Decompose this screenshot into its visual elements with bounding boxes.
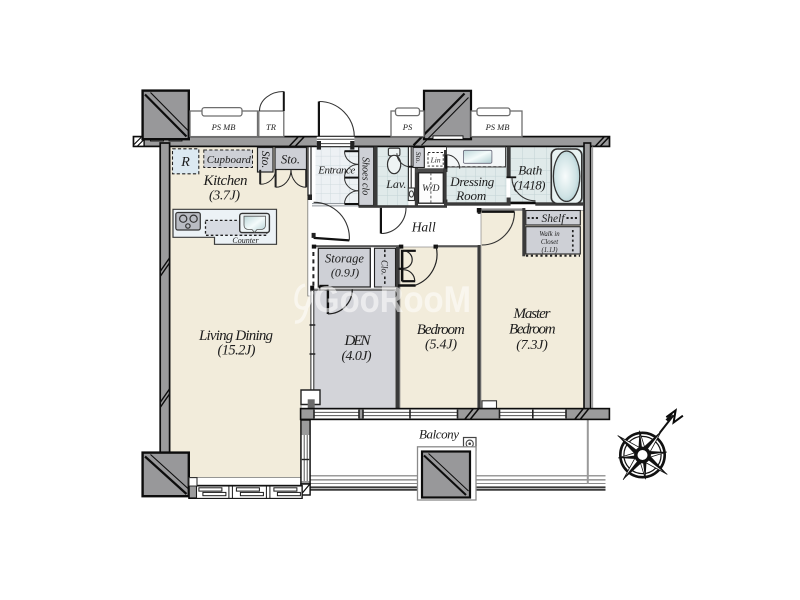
svg-text:W/D: W/D bbox=[422, 184, 440, 194]
svg-text:(15.2J): (15.2J) bbox=[218, 343, 256, 359]
svg-text:Closet: Closet bbox=[541, 239, 559, 246]
svg-text:(0.9J): (0.9J) bbox=[331, 266, 359, 280]
svg-text:(1418): (1418) bbox=[514, 178, 546, 193]
svg-text:Lav.: Lav. bbox=[385, 177, 406, 191]
svg-text:Sto.: Sto. bbox=[259, 151, 271, 169]
svg-text:Room: Room bbox=[455, 188, 486, 203]
svg-text:TR: TR bbox=[266, 122, 277, 132]
svg-text:Master: Master bbox=[513, 306, 551, 322]
svg-text:Bedroom: Bedroom bbox=[509, 322, 556, 338]
svg-text:Shoes clo: Shoes clo bbox=[360, 157, 371, 195]
svg-text:Hall: Hall bbox=[411, 220, 436, 235]
svg-text:Lin: Lin bbox=[430, 156, 441, 165]
svg-text:Sto.: Sto. bbox=[281, 153, 300, 167]
svg-text:Clo.: Clo. bbox=[380, 260, 390, 275]
svg-text:Shelf: Shelf bbox=[542, 213, 567, 225]
svg-text:(1.1J): (1.1J) bbox=[541, 247, 558, 254]
svg-text:Balcony: Balcony bbox=[419, 427, 459, 442]
svg-text:Walk in: Walk in bbox=[539, 231, 560, 238]
svg-text:PS MB: PS MB bbox=[485, 122, 510, 132]
svg-text:Dressing: Dressing bbox=[449, 174, 495, 189]
svg-text:PS MB: PS MB bbox=[211, 122, 236, 132]
svg-text:DEN: DEN bbox=[344, 333, 372, 349]
svg-text:PS: PS bbox=[402, 122, 413, 132]
svg-text:Bath: Bath bbox=[518, 163, 542, 178]
svg-text:(7.3J): (7.3J) bbox=[516, 338, 548, 353]
svg-text:GooRooM: GooRooM bbox=[314, 279, 471, 320]
svg-text:R: R bbox=[180, 155, 190, 170]
svg-text:Cupboard: Cupboard bbox=[207, 154, 252, 166]
svg-text:Storage: Storage bbox=[325, 252, 364, 266]
svg-text:Entrance: Entrance bbox=[317, 165, 355, 177]
svg-text:(5.4J): (5.4J) bbox=[425, 338, 457, 353]
svg-text:Sto.: Sto. bbox=[414, 152, 423, 164]
svg-text:(4.0J): (4.0J) bbox=[342, 349, 372, 364]
svg-text:Kitchen: Kitchen bbox=[203, 173, 248, 189]
svg-text:Bedroom: Bedroom bbox=[417, 322, 465, 338]
svg-text:Counter: Counter bbox=[232, 236, 259, 245]
svg-text:(3.7J): (3.7J) bbox=[209, 189, 240, 204]
